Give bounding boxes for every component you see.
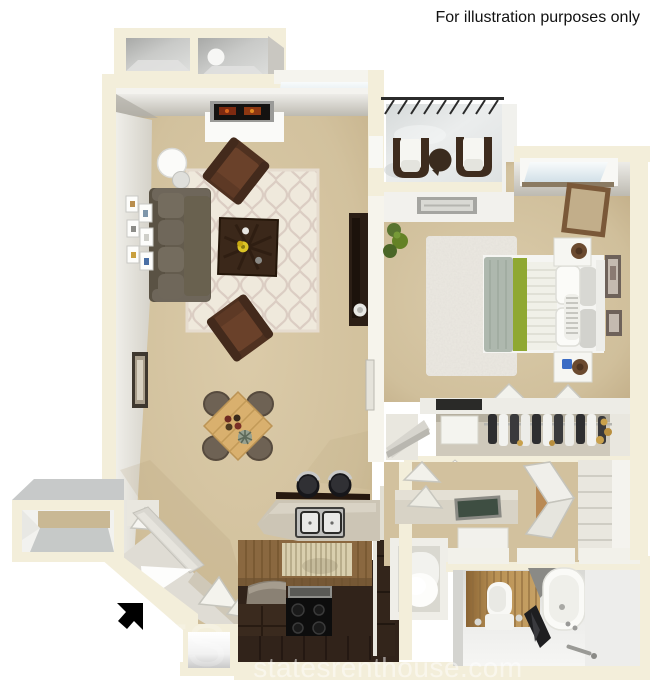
svg-text:statesrenthouse.com: statesrenthouse.com bbox=[253, 652, 522, 683]
svg-text:TS: TS bbox=[150, 612, 227, 679]
svg-text:For illustration purposes only: For illustration purposes only bbox=[435, 9, 640, 26]
